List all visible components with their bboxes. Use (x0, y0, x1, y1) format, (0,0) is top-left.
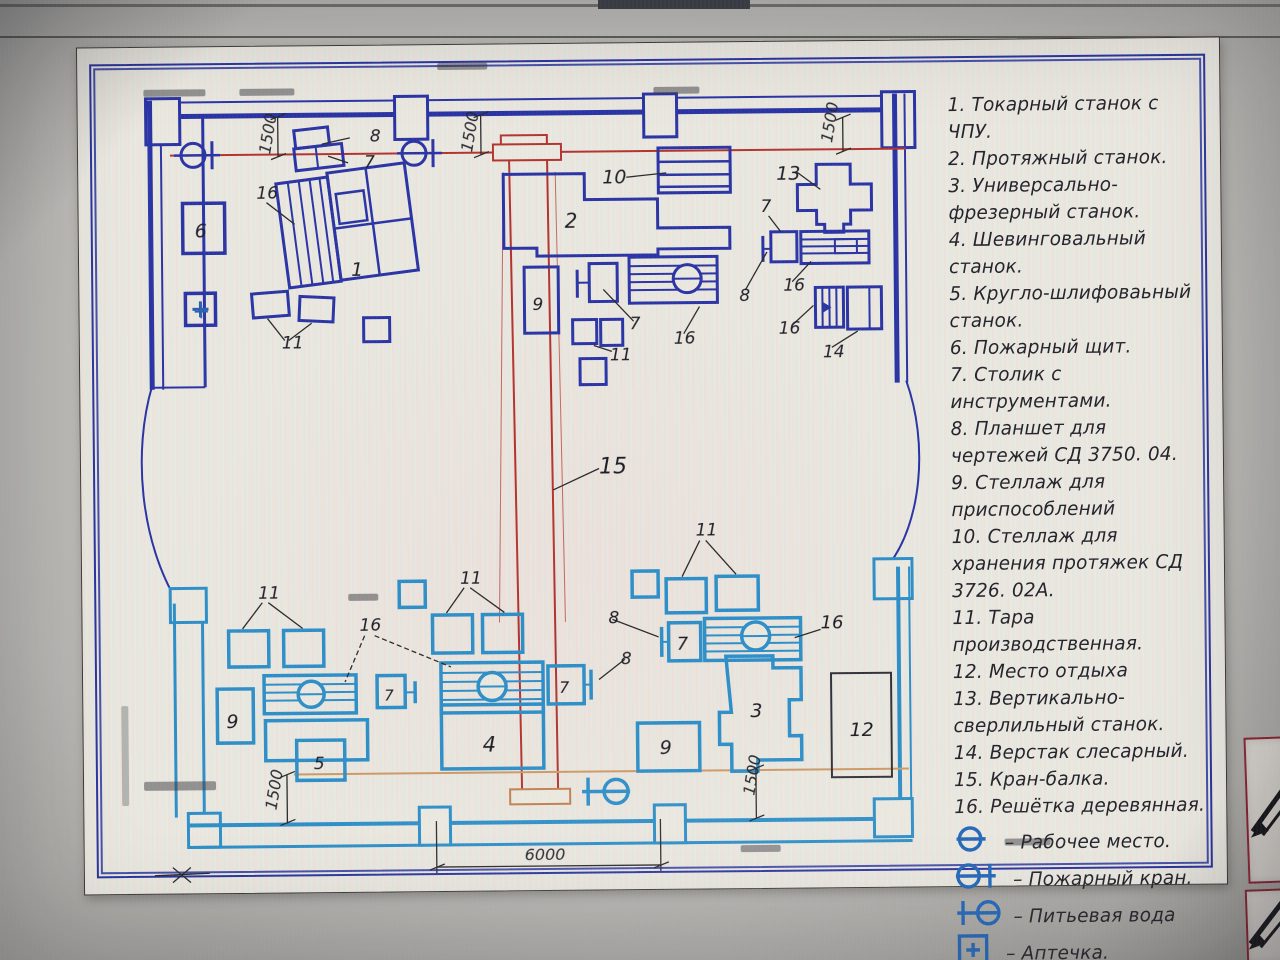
legend-item-9: 9. Стеллаж для приспособлений (951, 468, 1204, 524)
walls-dark (138, 91, 920, 603)
plan-label-8: 8 (621, 649, 632, 669)
legend-item-6: 6. Пожарный щит. (950, 333, 1202, 362)
plan-label-11: 11 (696, 520, 718, 540)
plan-label-4: 4 (483, 733, 497, 757)
plan-label-7: 7 (559, 678, 570, 697)
work-place-icon (954, 824, 1005, 862)
plan-label-16: 16 (256, 184, 278, 204)
pen-icon (1246, 738, 1280, 881)
plan-label-8: 8 (608, 608, 619, 628)
legend-item-13: 13. Вертикально-сверлильный станок. (953, 684, 1206, 740)
legend-symbol-label: – Питьевая вода (1013, 901, 1175, 930)
legend-item-2: 2. Протяжный станок. (948, 144, 1200, 173)
legend-item-10: 10. Стеллаж для хранения протяжек СД 372… (952, 522, 1205, 605)
legend-symbol-label: – Рабочее место. (1005, 828, 1171, 857)
legend-item-12: 12. Место отдыха (953, 657, 1205, 686)
legend-item-8: 8. Планшет для чертежей СД 3750. 04. (951, 414, 1204, 470)
plan-label-16: 16 (359, 616, 381, 636)
legend-symbol-fire-hydrant: – Пожарный кран. (955, 863, 1207, 895)
plan-label-10: 10 (602, 166, 626, 188)
plan-label-9: 9 (660, 737, 672, 759)
plan-label-7: 7 (677, 634, 689, 655)
dimension-1500: 1500 (255, 112, 280, 155)
legend-symbol-label: – Пожарный кран. (1013, 864, 1193, 893)
screen-top-tab (598, 0, 750, 9)
plan-label-15: 15 (599, 454, 627, 479)
plan-label-2: 2 (565, 209, 578, 233)
plan-label-9: 9 (226, 711, 238, 733)
legend-item-15: 15. Кран-балка. (954, 765, 1206, 794)
plan-label-7: 7 (384, 686, 394, 704)
legend-item-16: 16. Решётка деревянная. (954, 792, 1206, 821)
plan-label-6: 6 (195, 220, 207, 242)
dimension-1500: 1500 (817, 101, 842, 144)
plan-label-5: 5 (314, 754, 325, 774)
plan-label-3: 3 (750, 700, 762, 722)
plan-label-11: 11 (610, 345, 632, 365)
plan-label-9: 9 (532, 295, 543, 315)
legend-item-5: 5. Кругло-шлифоваьный станок. (949, 279, 1202, 335)
tool-card-pen-2[interactable] (1245, 888, 1280, 960)
legend-symbol-first-aid: – Аптечка. (956, 937, 1208, 960)
first-aid-icon (956, 934, 1007, 960)
legend-symbol-drinking-water: – Питьевая вода (955, 900, 1207, 932)
legend-symbol-work-place: – Рабочее место. (954, 826, 1206, 858)
plan-label-8: 8 (370, 127, 381, 147)
legend-item-4: 4. Шевинговальный станок. (949, 225, 1202, 281)
plan-label-12: 12 (849, 719, 873, 741)
plan-label-16: 16 (783, 276, 805, 296)
plan-label-16: 16 (674, 329, 696, 349)
plan-label-+: + (192, 299, 210, 323)
drawing-sheet: 871616+111029716111513716816141116119754… (76, 37, 1228, 896)
monitor-photo: 871616+111029716111513716816141116119754… (0, 0, 1280, 960)
plan-label-7: 7 (364, 153, 375, 173)
fire-hydrant-icon (955, 861, 1014, 900)
plan-label-7: 7 (760, 197, 771, 217)
legend-panel: 1. Токарный станок с ЧПУ.2. Протяжный ст… (947, 90, 1208, 960)
plan-label-11: 11 (460, 569, 482, 589)
plan-label-14: 14 (823, 342, 845, 362)
dimension-6000: 6000 (525, 845, 566, 864)
legend-item-3: 3. Универсально-фрезерный станок. (948, 171, 1201, 227)
drinking-water-icon (955, 898, 1014, 937)
legend-item-14: 14. Верстак слесарный. (954, 738, 1206, 767)
legend-items: 1. Токарный станок с ЧПУ.2. Протяжный ст… (947, 90, 1206, 821)
legend-item-11: 11. Тара производственная. (952, 603, 1205, 659)
plan-label-7: 7 (630, 314, 641, 334)
legend-symbol-label: – Аптечка. (1006, 939, 1109, 960)
dimension-1500: 1500 (739, 753, 764, 796)
plan-label-16: 16 (779, 319, 801, 339)
tool-card-pen-1[interactable] (1243, 736, 1280, 883)
plan-label-1: 1 (351, 259, 363, 281)
plan-label-11: 11 (282, 333, 304, 353)
plan-label-8: 8 (739, 286, 750, 306)
plan-label-16: 16 (820, 612, 843, 633)
legend-item-7: 7. Столик с инструментами. (950, 360, 1203, 416)
legend-symbols: – Рабочее место.– Пожарный кран.– Питьев… (954, 826, 1208, 960)
plan-label-13: 13 (776, 163, 800, 185)
pen-icon (1247, 890, 1280, 960)
plan-label-11: 11 (258, 584, 280, 604)
dimension-1500: 1500 (457, 110, 482, 153)
dimension-1500: 1500 (261, 768, 286, 811)
legend-item-1: 1. Токарный станок с ЧПУ. (947, 90, 1200, 146)
